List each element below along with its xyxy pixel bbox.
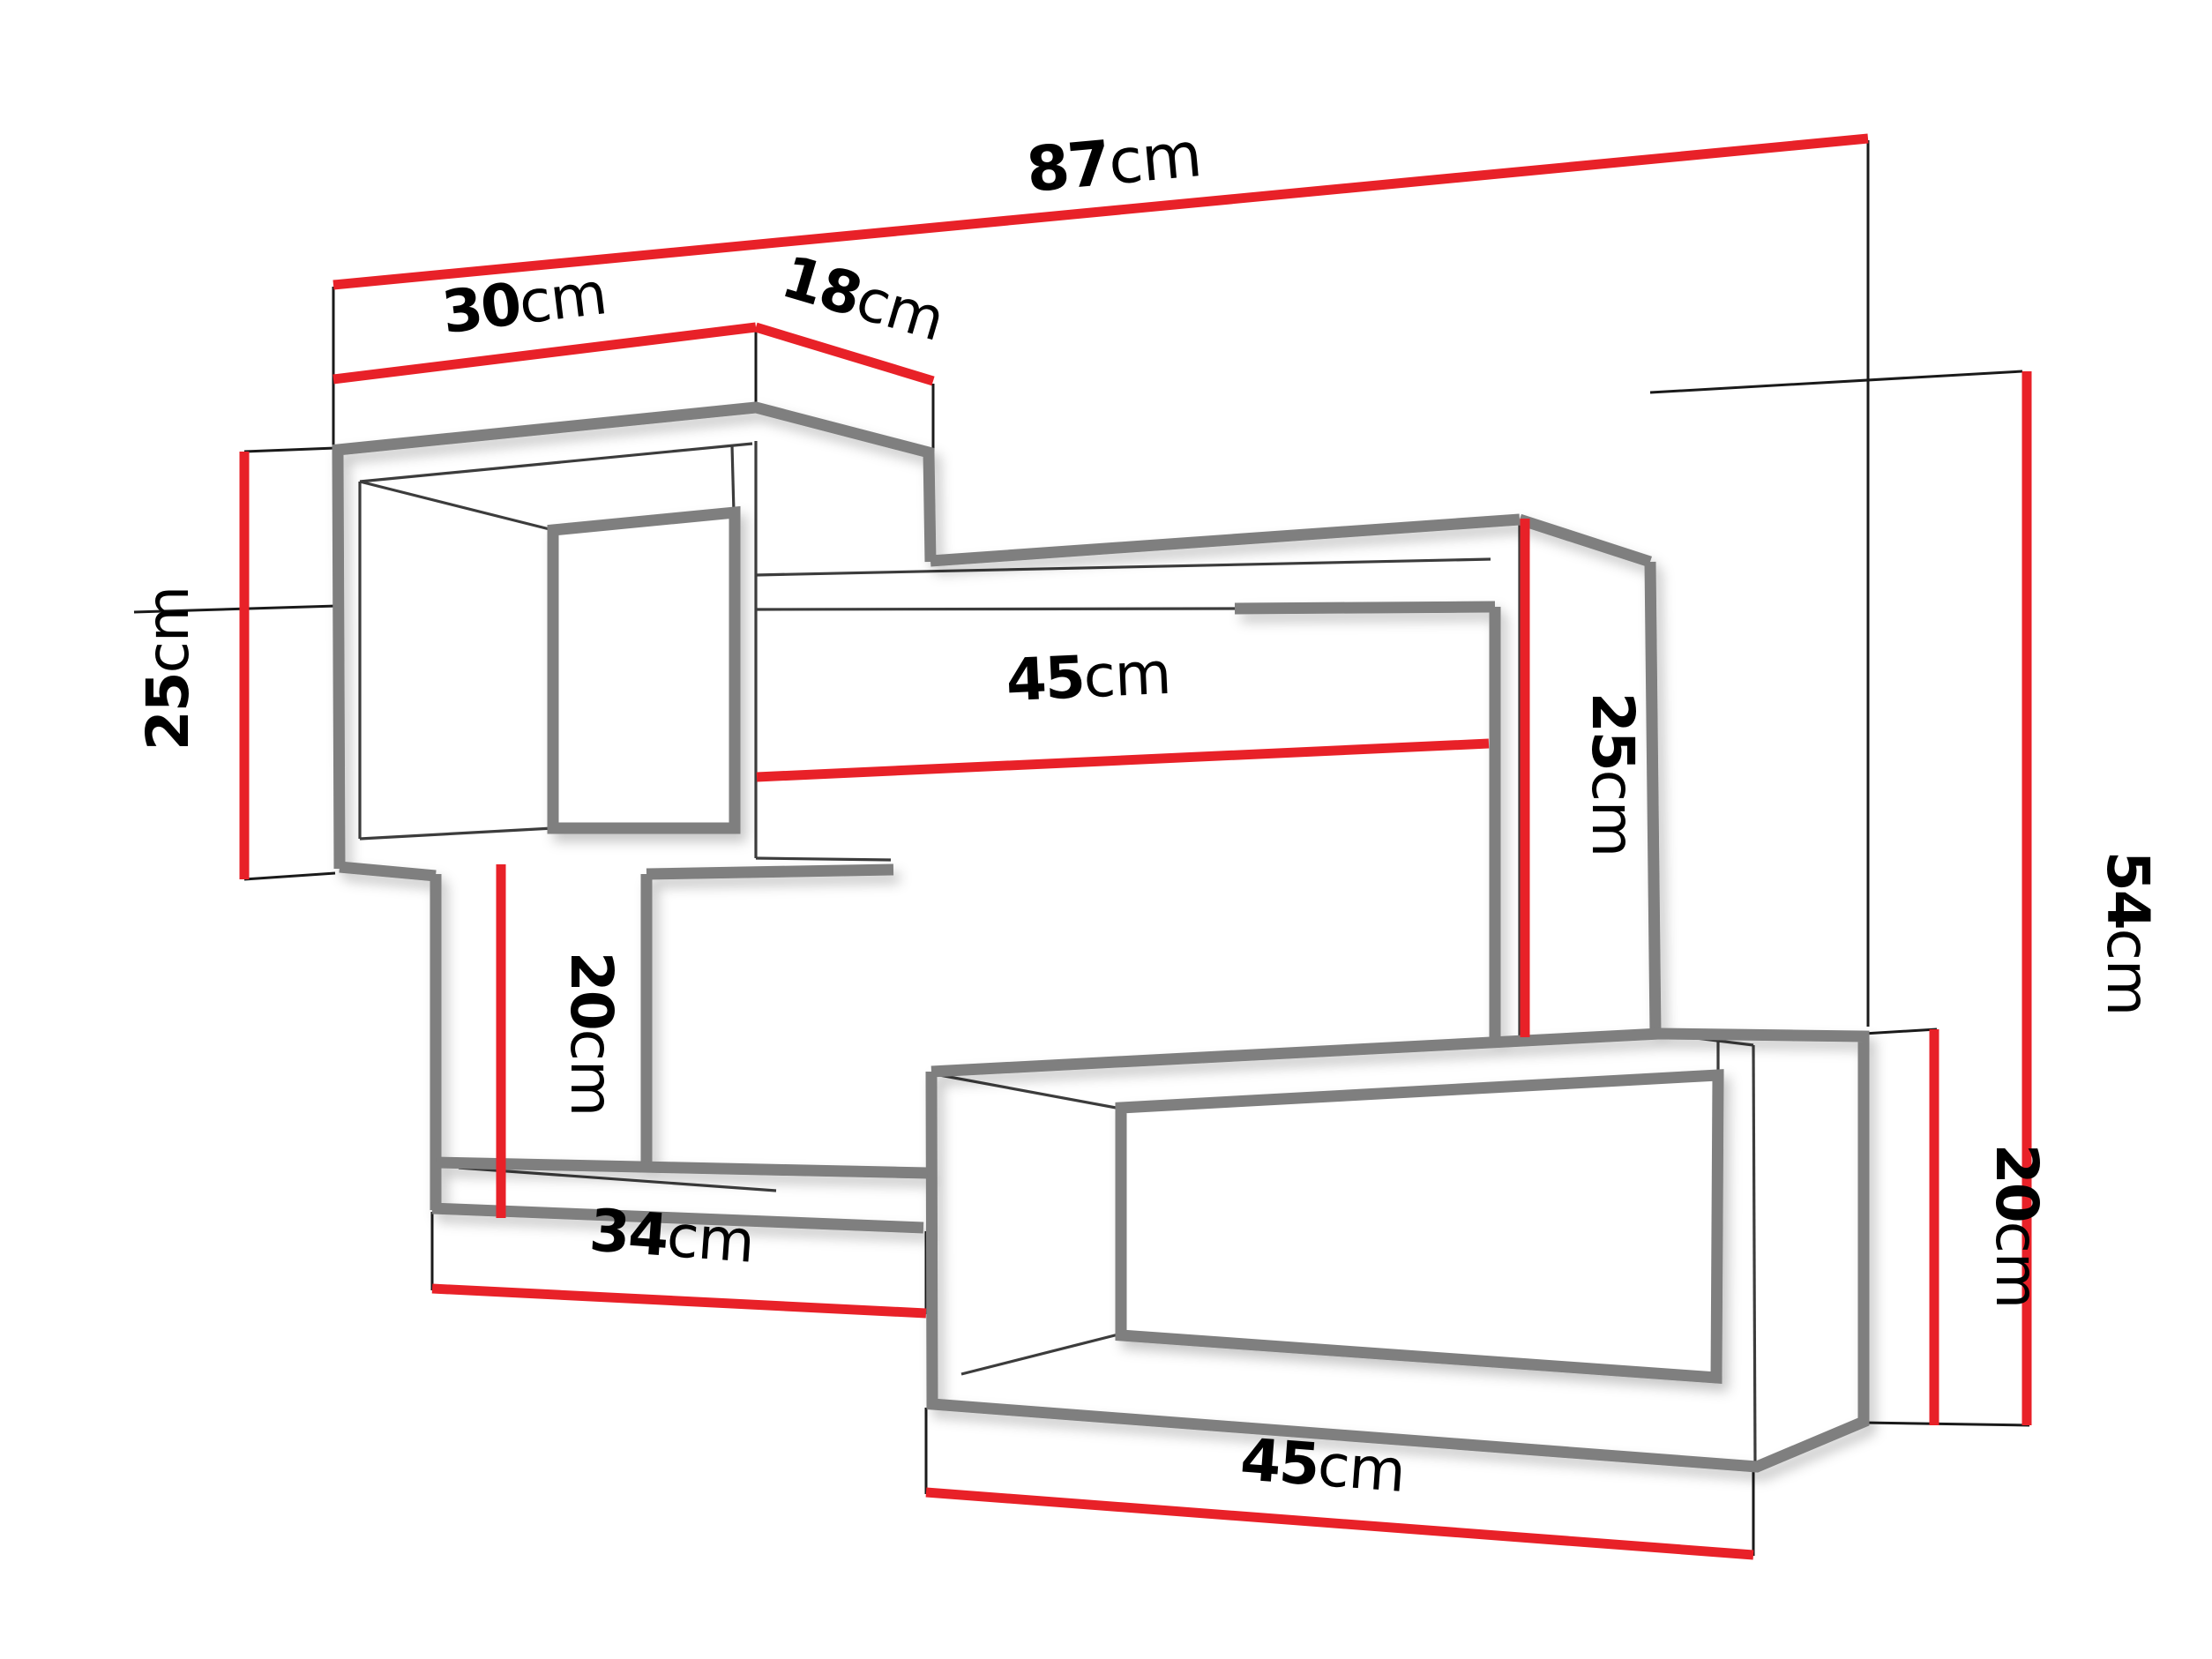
left-cube-bottom-interior-edge [756, 858, 891, 860]
bottom-box-front-right-edge [1753, 1045, 1755, 1467]
upper-board-back-top-edge [930, 519, 1520, 561]
dim-line-45-middle [757, 744, 1489, 777]
bottom-box-opening [1121, 1075, 1718, 1378]
diagram-page: 87cm 30cm 18cm 25cm 45cm 25cm 20cm 34cm … [0, 0, 2212, 1659]
left-cube-bottom-edge [340, 867, 436, 876]
extension-line-20right-top [1864, 1029, 1937, 1034]
dim-label-25-middle: 25cm [1579, 692, 1647, 856]
extension-line-54-top [1650, 371, 2022, 392]
upper-board-bottom-edge-right [1235, 607, 1495, 609]
dim-label-45-bottom: 45cm [1238, 1425, 1408, 1506]
upper-board-front-bottom-edge [756, 609, 1235, 609]
dimension-lines [244, 138, 2027, 1555]
dim-label-20-right: 20cm [1983, 1144, 2051, 1308]
dim-label-87: 87cm [1023, 118, 1204, 206]
extension-line-25left-bottom [244, 873, 335, 879]
left-cube-inner-right-edge [732, 445, 734, 512]
dim-line-34 [432, 1289, 926, 1313]
bottom-box-interior-diagonal-bottom [961, 1334, 1118, 1374]
dim-line-45-bottom [926, 1492, 1753, 1555]
dim-label-34: 34cm [587, 1196, 757, 1275]
shelf-dimension-drawing: 87cm 30cm 18cm 25cm 45cm 25cm 20cm 34cm … [0, 0, 2212, 1659]
upper-board-receding-edge [1520, 519, 1650, 562]
extension-line-54-20-bottom [1864, 1423, 2029, 1425]
left-cube-interior-diagonal-top [360, 482, 553, 530]
bottom-box-interior-diagonal-top [935, 1074, 1121, 1109]
left-cube-inner-top-edge [360, 444, 752, 482]
extension-line-25left-top [244, 448, 335, 452]
upper-board-front-top-edge [756, 559, 1491, 575]
dim-label-54: 54cm [2094, 851, 2162, 1015]
right-panel-outer-edge [1650, 562, 1655, 1034]
dim-label-45-middle: 45cm [1005, 639, 1172, 714]
left-cube-bottom-edge-right [646, 870, 893, 874]
dim-line-30 [333, 327, 756, 379]
left-cube-inner-bottom-edge [360, 828, 553, 839]
dim-label-25-left: 25cm [134, 587, 202, 751]
left-cube-opening [553, 512, 735, 828]
dim-label-20-left: 20cm [557, 952, 625, 1116]
